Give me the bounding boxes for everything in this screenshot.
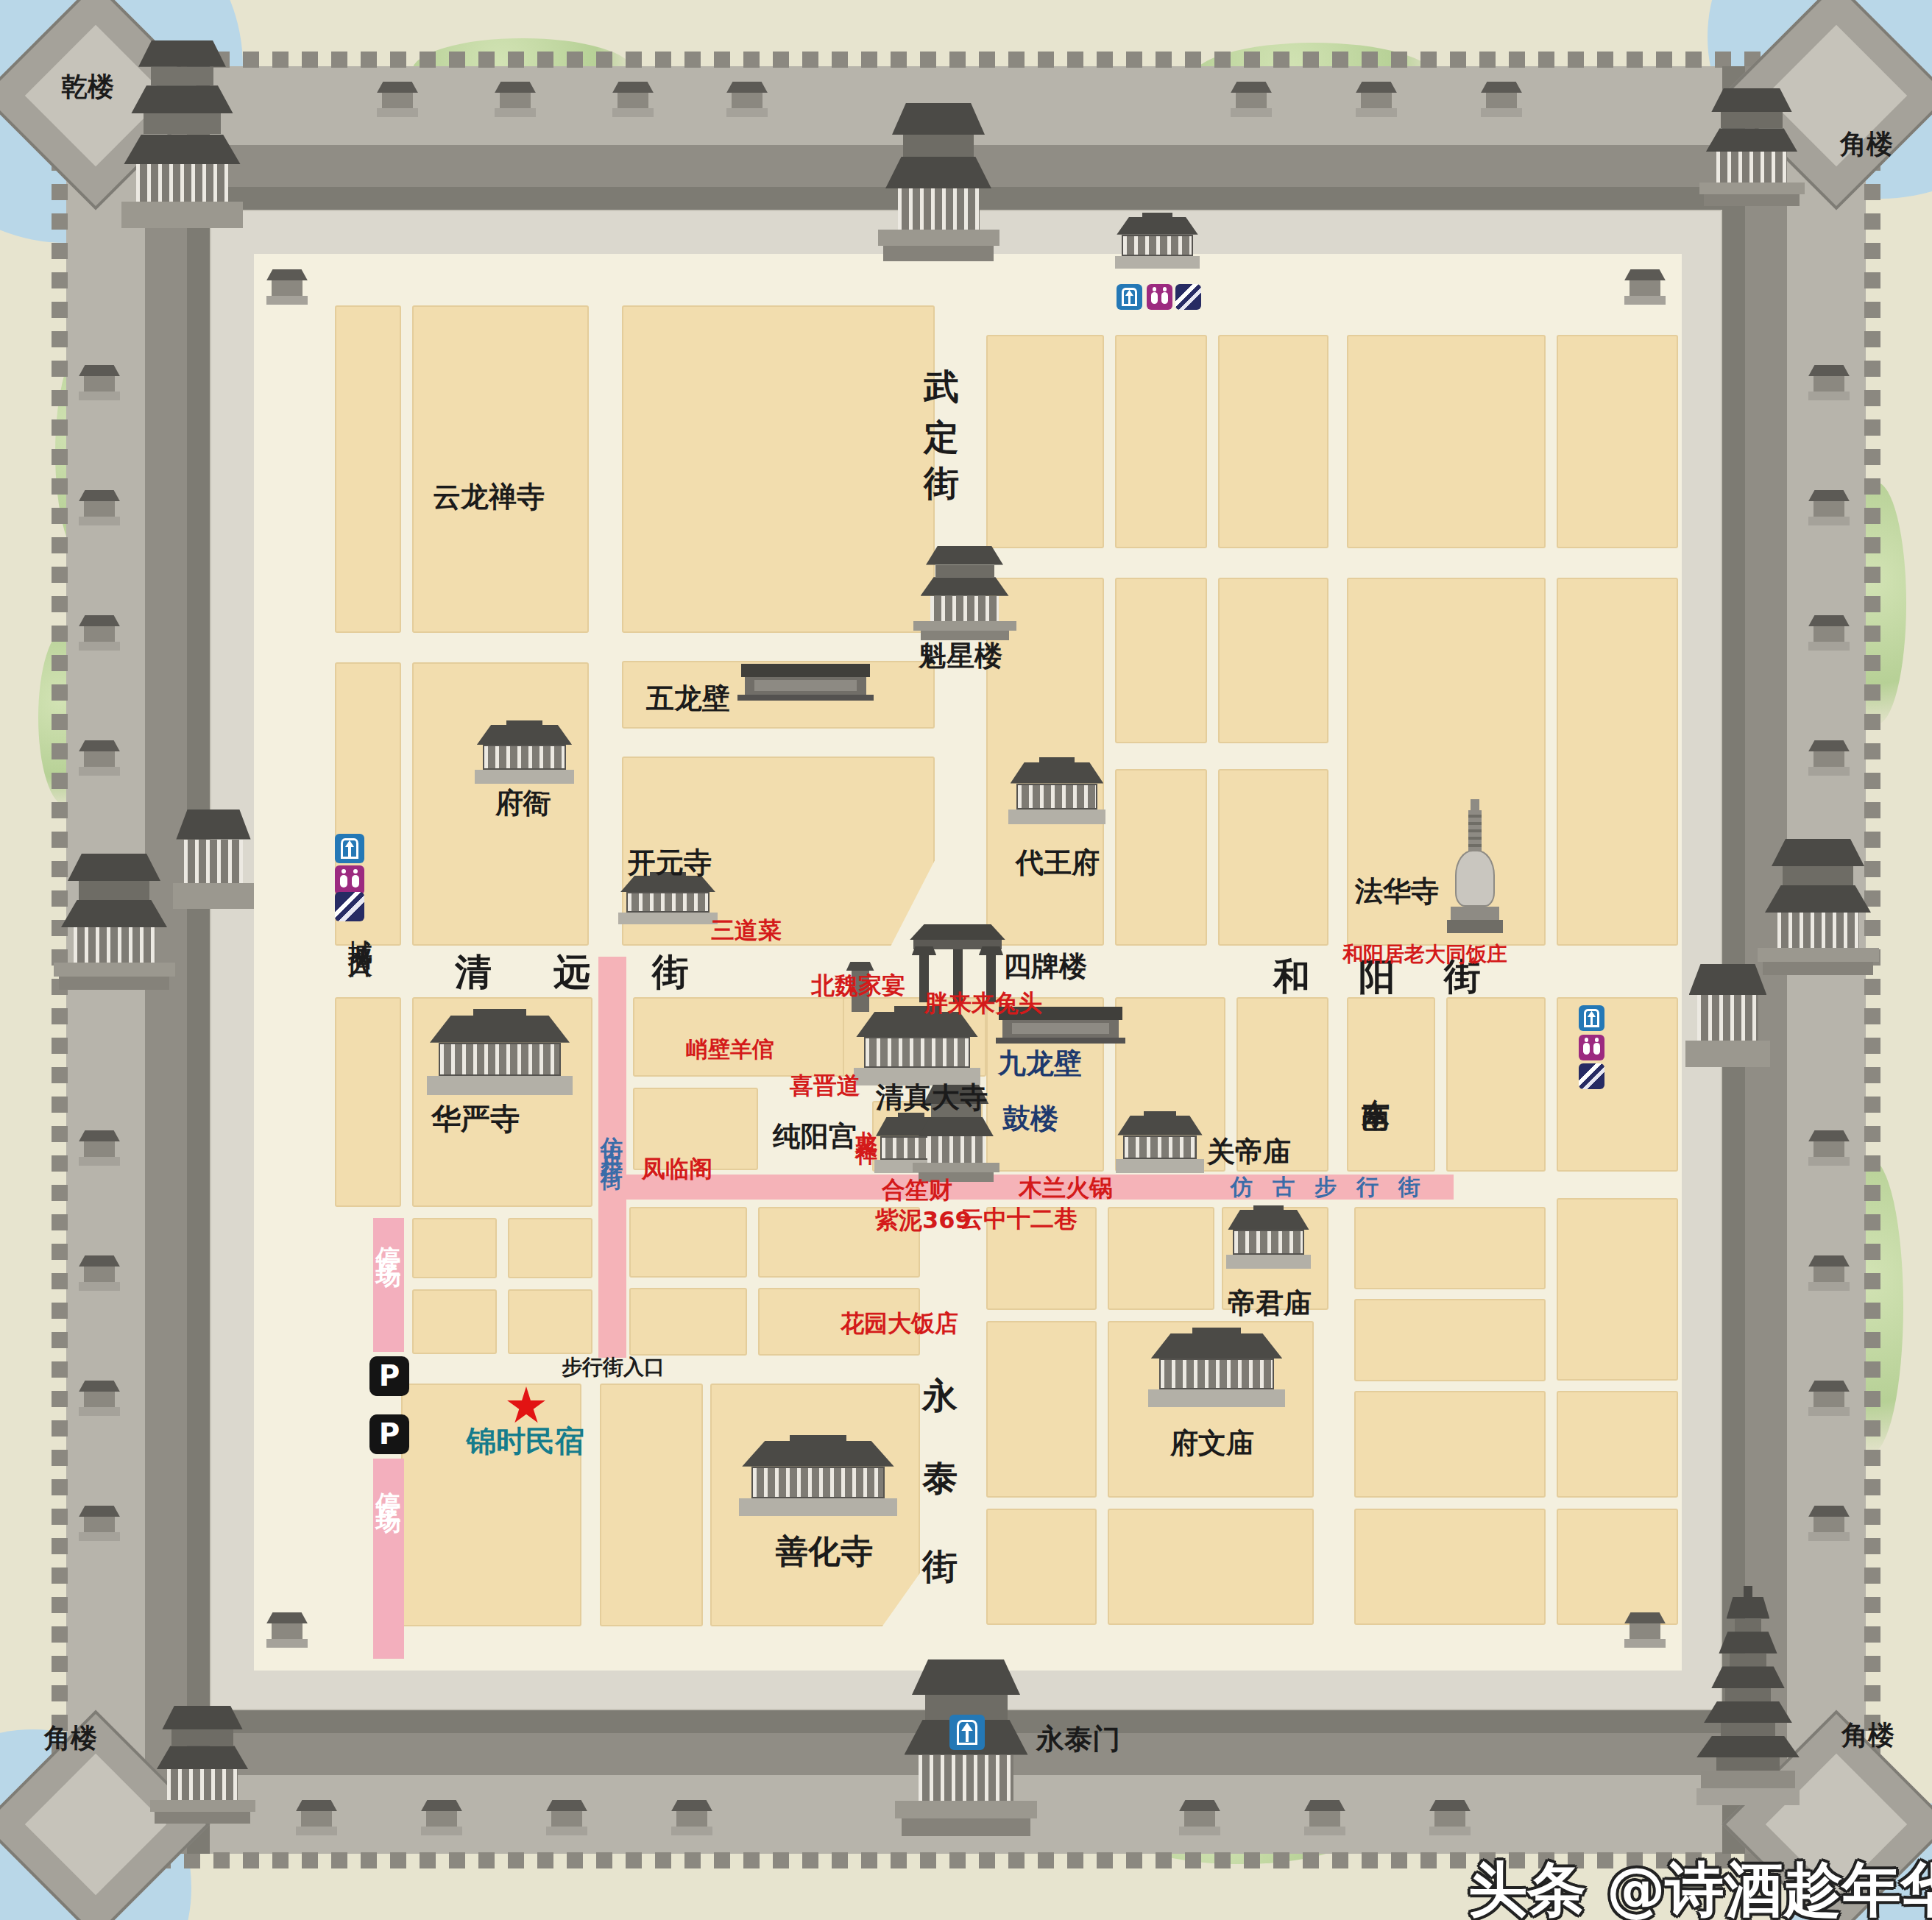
label-chunyanggong: 纯阳宫: [773, 1122, 857, 1150]
label-beiwei-banquet: 北魏家宴: [811, 974, 905, 997]
label-dongnanyi: 东南邑: [1362, 1076, 1390, 1089]
label-shanhuasi: 善化寺: [776, 1535, 873, 1567]
label-kaiyuansi: 开元寺: [628, 849, 712, 876]
label-garden-hotel: 花园大饭店: [841, 1311, 958, 1335]
datong-ancient-city-map: PP 停车场停车场乾楼角楼角楼角楼武定街永泰街清远街和阳街云龙禅寺府衙五龙壁魁星…: [0, 0, 1932, 1920]
label-dijunmiao: 帝君庙: [1228, 1289, 1312, 1317]
label-daiwangfu: 代王府: [1016, 849, 1100, 876]
label-jiaolou-ne: 角楼: [1840, 131, 1893, 157]
parking-label: 停车场: [376, 1226, 401, 1253]
label-sandaocai: 三道菜: [711, 918, 782, 942]
label-fahuasi: 法华寺: [1355, 877, 1439, 905]
label-jinshi-homestay: 锦时民宿: [467, 1426, 584, 1456]
label-qingyuan-street: 清远街: [455, 954, 751, 991]
label-qianlou: 乾楼: [61, 74, 114, 100]
label-panglailai: 胖来来兔头: [924, 991, 1042, 1015]
label-yongtai-street: 永泰街: [923, 1347, 958, 1607]
label-kuixinglou: 魁星楼: [919, 642, 1002, 670]
label-jiaolou-se: 角楼: [1841, 1722, 1894, 1749]
label-qiaobi-lamb: 峭壁羊倌: [686, 1038, 774, 1060]
label-heyangju: 和阳居老大同饭庄: [1342, 944, 1507, 965]
label-huayansi: 华严寺: [431, 1104, 520, 1133]
label-longjuxiang: 龙聚祥: [855, 1113, 877, 1130]
label-jiaolou-sw: 角楼: [44, 1725, 97, 1751]
label-fuwenmiao: 府文庙: [1170, 1429, 1254, 1457]
label-qingzhendasi: 清真大寺: [876, 1083, 988, 1111]
parking-label: 停车场: [376, 1472, 401, 1498]
label-guandimiao: 关帝庙: [1207, 1138, 1291, 1166]
label-pedestrian-v: 仿古步行街: [601, 1119, 623, 1159]
label-zini369: 紫泥369: [875, 1208, 972, 1232]
label-yunlong-temple: 云龙禅寺: [433, 483, 545, 511]
label-mulan-hotpot: 木兰火锅: [1019, 1176, 1113, 1200]
label-jiulongbi: 九龙壁: [998, 1049, 1082, 1077]
label-xijindao: 喜晋道: [790, 1074, 860, 1097]
label-wuding-street: 武定街: [924, 340, 960, 486]
label-pedestrian-h: 仿古步行街: [1231, 1176, 1440, 1198]
label-yongtaimen: 永泰门: [1036, 1725, 1120, 1753]
label-gulou: 鼓楼: [1002, 1105, 1058, 1133]
watermark-text: 头条 @诗酒趁年华: [1468, 1851, 1932, 1920]
label-sipailou: 四牌楼: [1003, 952, 1087, 980]
label-walkstreet-entrance: 步行街入口: [562, 1357, 665, 1378]
label-layer: 停车场停车场乾楼角楼角楼角楼武定街永泰街清远街和阳街云龙禅寺府衙五龙壁魁星楼开元…: [0, 0, 1932, 1920]
label-heshengcai: 合笙财: [882, 1178, 952, 1202]
label-wall-entrance: 城墙入口: [349, 921, 372, 945]
label-fenglinge: 凤临阁: [642, 1157, 712, 1180]
label-wulongbi: 五龙壁: [646, 684, 730, 712]
label-yunzhong-lane: 云中十二巷: [960, 1207, 1078, 1230]
label-fuya: 府衙: [495, 789, 551, 817]
